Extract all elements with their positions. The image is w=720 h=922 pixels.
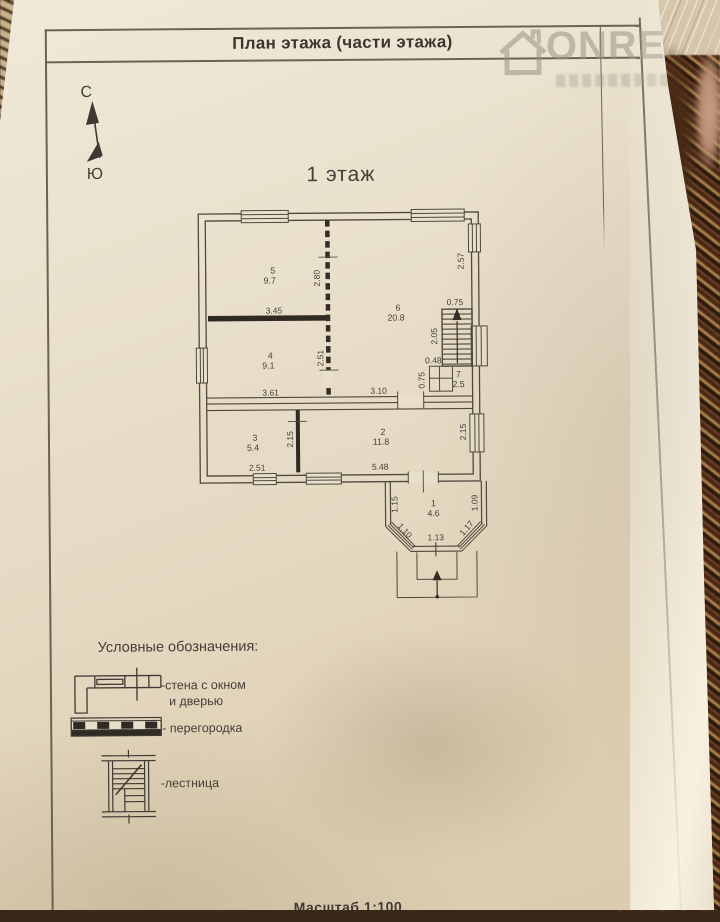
- dim-0-75-wc: 0.75: [416, 372, 426, 389]
- room5-num: 5: [270, 266, 275, 276]
- window-left-1: [196, 348, 207, 383]
- outer-wall: [198, 212, 480, 483]
- door-gap-partition: [323, 370, 333, 385]
- entrance-arrow-dot: [436, 595, 439, 598]
- room4-area: 9.1: [262, 361, 274, 371]
- room5-area: 9.7: [264, 276, 276, 286]
- dim-1-09: 1.09: [469, 494, 479, 511]
- room7-area: 2.5: [452, 379, 464, 389]
- frame-right-line: [639, 18, 682, 917]
- bearing-wall-room5: [208, 315, 328, 321]
- dim-1-15: 1.15: [389, 496, 399, 513]
- legend-stairs-symbol: [97, 749, 160, 823]
- room3-num: 3: [252, 433, 257, 443]
- room2-num: 2: [380, 427, 385, 437]
- windows: [195, 209, 488, 485]
- dim-1-10: 1.10: [396, 521, 415, 540]
- room6-num: 6: [395, 303, 400, 313]
- room2-area: 11.8: [373, 437, 390, 447]
- dim-0-48: 0.48: [425, 355, 442, 365]
- foot-skin-patch: [694, 48, 720, 173]
- partition-3-2: [296, 410, 300, 473]
- room6-area: 20.8: [387, 313, 404, 323]
- window-bottom-2: [306, 473, 341, 484]
- compass-feather: [87, 142, 103, 162]
- room7-closet: [429, 366, 452, 391]
- room4-num: 4: [268, 351, 273, 361]
- legend-partition-symbol: [69, 715, 164, 740]
- window-top-1: [241, 210, 288, 222]
- compass-icon: С Ю: [62, 82, 123, 182]
- compass-south-label: Ю: [87, 166, 103, 182]
- compass-north-label: С: [80, 84, 92, 101]
- dim-2-51-room3: 2.51: [249, 463, 266, 473]
- dim-2-51-room4: 2.51: [315, 350, 325, 367]
- dim-2-15-room3: 2.15: [285, 431, 295, 448]
- floor-title: 1 этаж: [266, 162, 416, 187]
- rooms23-top-wall: [207, 408, 473, 410]
- dim-2-15-room2: 2.15: [458, 423, 468, 440]
- dim-2-57: 2.57: [456, 252, 466, 269]
- legend-wall-symbol: [65, 667, 165, 720]
- legend-partition-label: - перегородка: [162, 721, 242, 736]
- compass-arrowhead: [86, 101, 99, 125]
- window-right-1: [468, 224, 480, 252]
- window-right-stairs: [471, 326, 487, 366]
- watermark-house-icon: [494, 22, 552, 80]
- entrance-arrow-head: [433, 570, 442, 580]
- legend-wall-label-line2: и дверью: [169, 694, 223, 708]
- legend-stairs-label: -лестница: [161, 776, 219, 790]
- dim-3-10: 3.10: [370, 386, 387, 396]
- document-content: План этажа (части этажа) ONREA С Ю 1 эта…: [0, 0, 720, 913]
- dim-3-61: 3.61: [262, 387, 279, 397]
- corridor-wall: [207, 396, 473, 404]
- floor-plan: 5 9.7 6 20.8 4 9.1 3 5.4 2 11.8 1 4.6 7 …: [191, 199, 494, 611]
- watermark-subtitle-blur: [556, 73, 674, 87]
- scale-note: Масштаб 1:100: [294, 899, 403, 916]
- dim-1-17: 1.17: [457, 518, 476, 537]
- dim-0-75-stairs: 0.75: [447, 297, 464, 307]
- dim-2-05: 2.05: [429, 328, 439, 345]
- window-right-2: [470, 414, 484, 452]
- room3-area: 5.4: [247, 443, 259, 453]
- room7-num: 7: [456, 369, 461, 379]
- room1-area: 4.6: [427, 508, 439, 518]
- room1-num: 1: [431, 498, 436, 508]
- inner-wall: [205, 219, 473, 476]
- corridor-door-gap: [398, 393, 424, 404]
- dim-5-48: 5.48: [372, 462, 389, 472]
- dim-3-45: 3.45: [266, 305, 283, 315]
- paper-sheet: План этажа (части этажа) ONREA С Ю 1 эта…: [0, 0, 720, 910]
- bay-walls: [385, 481, 487, 557]
- legend-wall-label-line1: -стена с окном: [161, 678, 246, 693]
- frame-left-line: [45, 29, 53, 912]
- window-bottom-1: [253, 474, 276, 485]
- dim-1-13: 1.13: [427, 532, 444, 542]
- dim-2-80: 2.80: [312, 270, 322, 287]
- legend-title: Условные обозначения:: [98, 639, 259, 656]
- window-top-2: [411, 209, 464, 221]
- photo-of-floor-plan-sheet: { "header": { "title": "План этажа (част…: [0, 0, 720, 910]
- floor-plan-svg: 5 9.7 6 20.8 4 9.1 3 5.4 2 11.8 1 4.6 7 …: [191, 199, 494, 611]
